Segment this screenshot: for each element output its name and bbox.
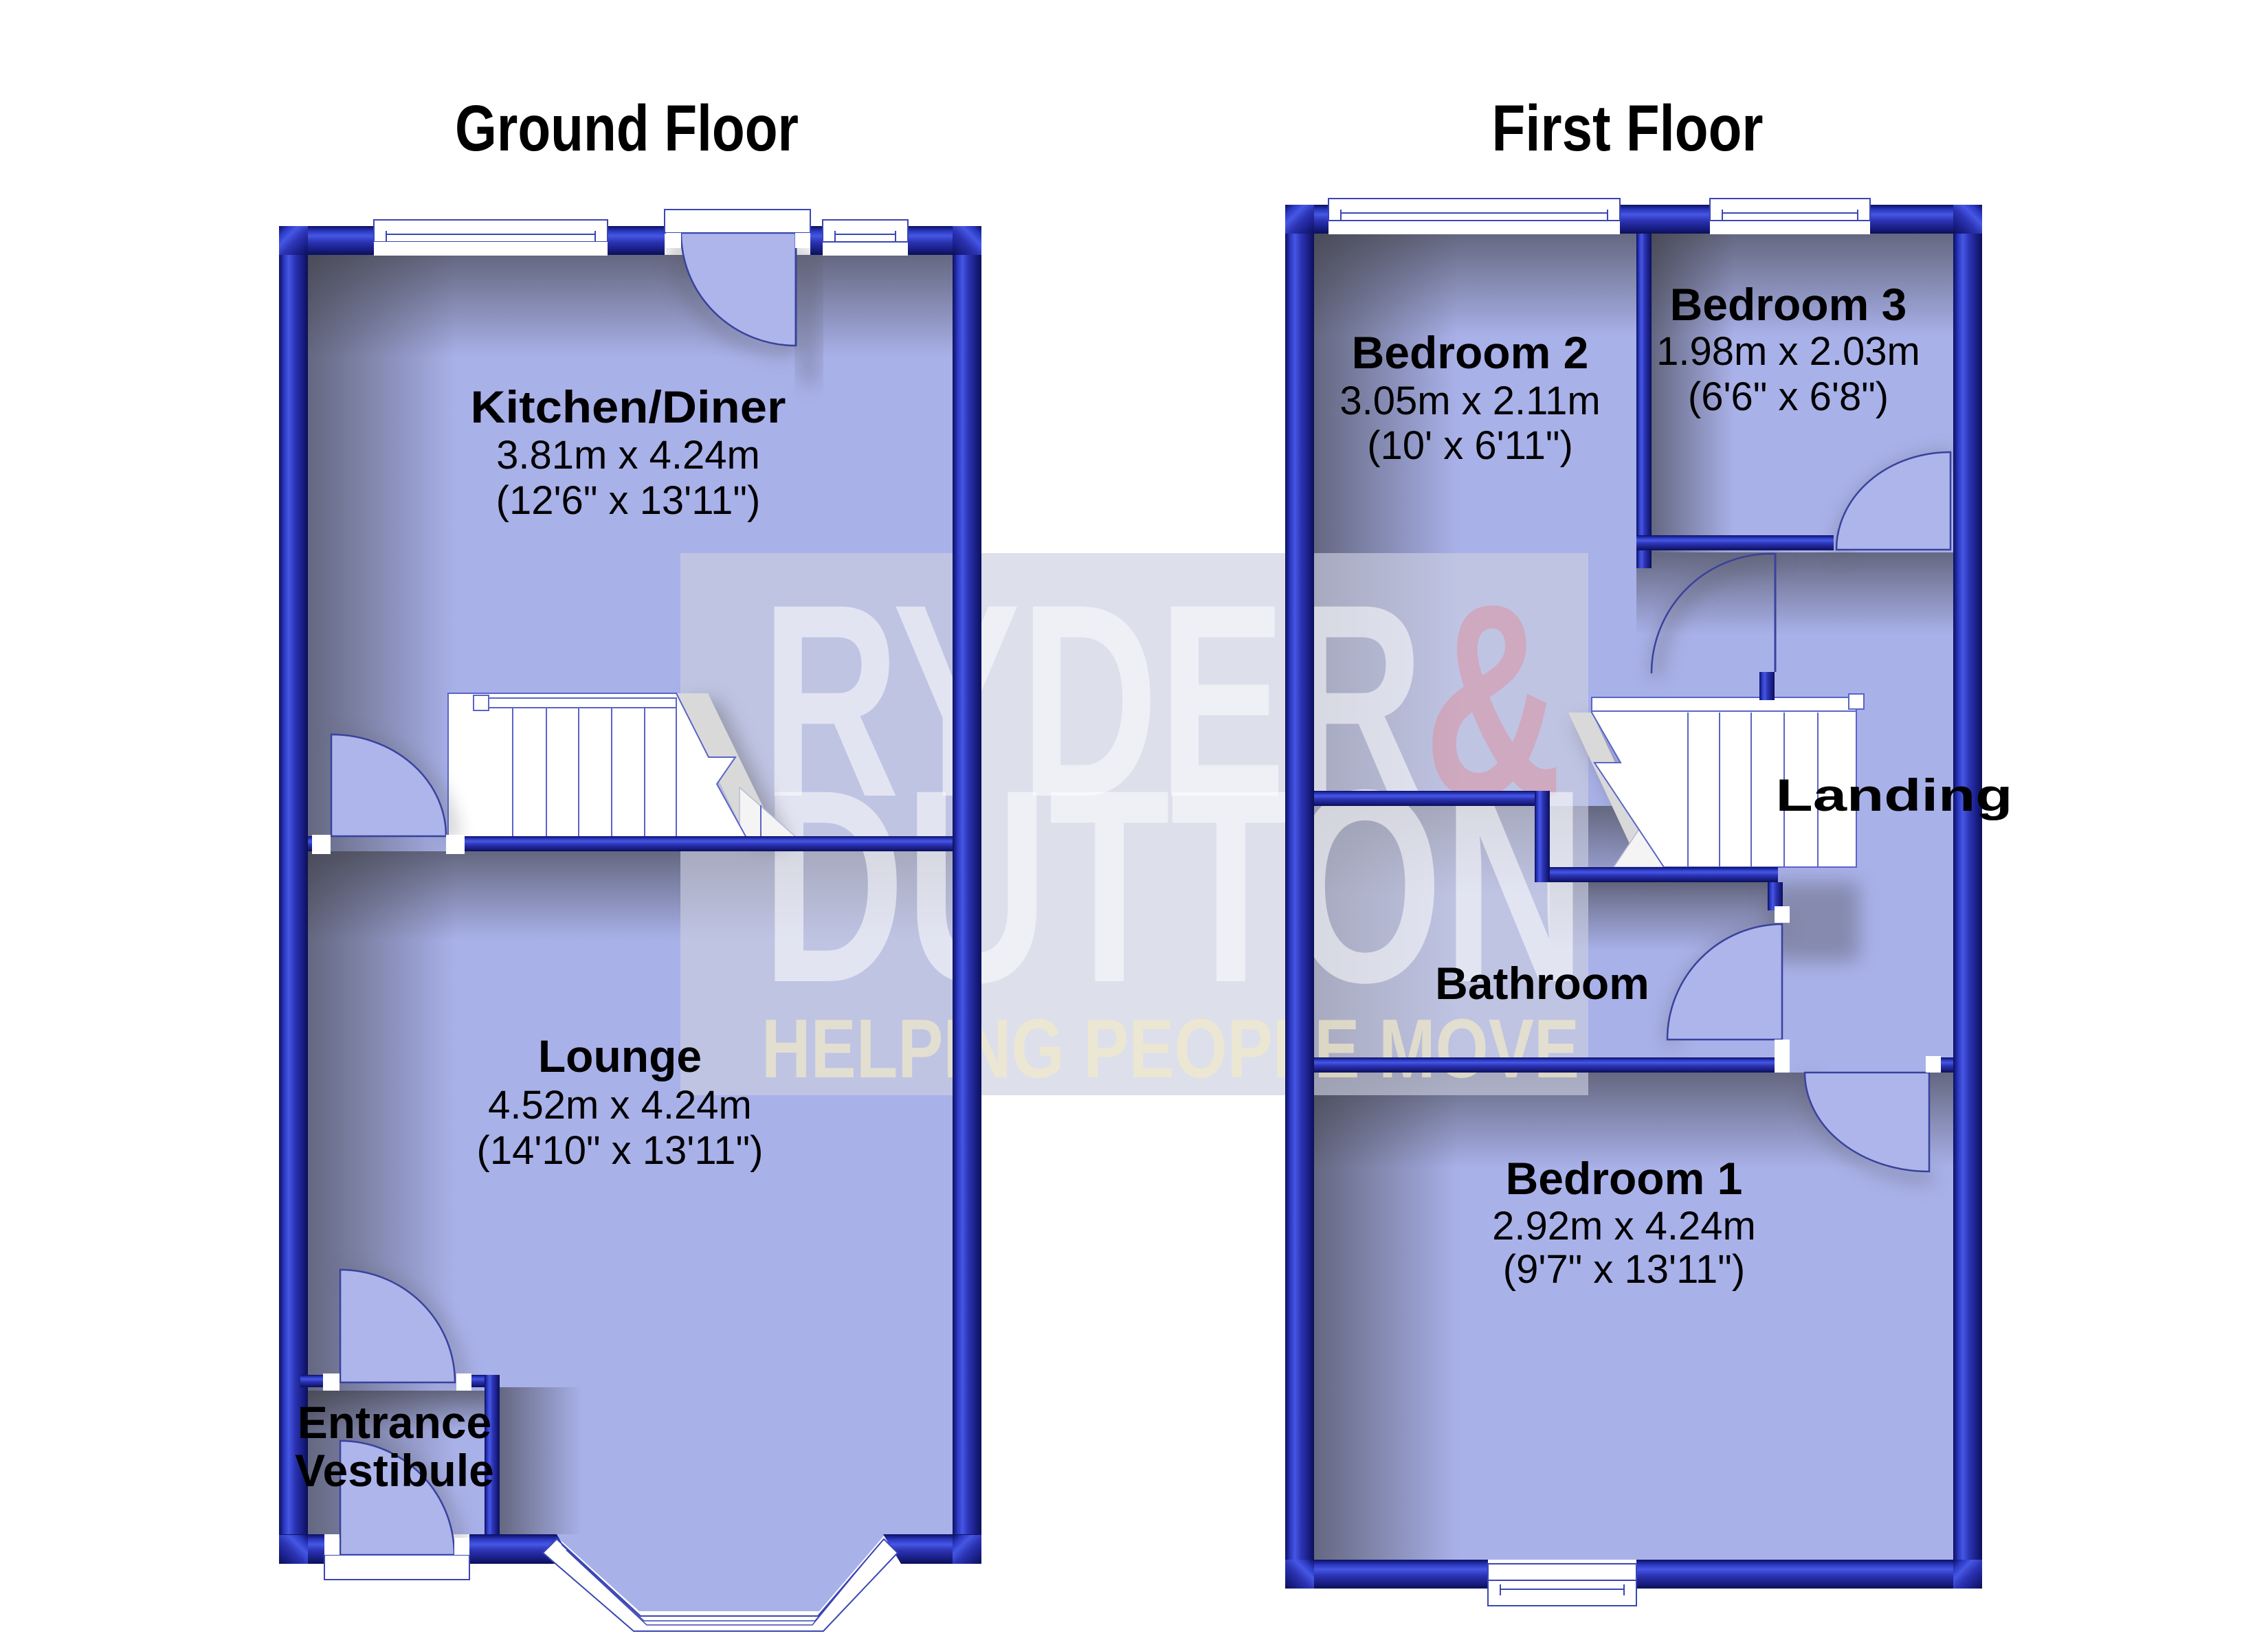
svg-text:(12'6" x 13'11"): (12'6" x 13'11") [496,478,761,523]
svg-text:(6'6" x 6'8"): (6'6" x 6'8") [1688,374,1889,419]
svg-text:4.52m x 4.24m: 4.52m x 4.24m [488,1083,752,1128]
svg-text:1.98m x 2.03m: 1.98m x 2.03m [1656,329,1920,374]
svg-text:3.81m x 4.24m: 3.81m x 4.24m [496,433,760,478]
svg-text:First Floor: First Floor [1492,92,1764,165]
svg-text:Bedroom 2: Bedroom 2 [1352,327,1589,378]
svg-text:Landing: Landing [1776,770,2013,820]
svg-text:Bedroom 3: Bedroom 3 [1670,279,1907,330]
svg-text:Ground Floor: Ground Floor [455,92,799,165]
svg-text:(9'7" x 13'11"): (9'7" x 13'11") [1503,1247,1745,1292]
svg-text:Kitchen/Diner: Kitchen/Diner [471,381,786,432]
svg-text:Bedroom 1: Bedroom 1 [1506,1153,1743,1204]
svg-text:Bathroom: Bathroom [1435,958,1649,1009]
svg-text:2.92m x 4.24m: 2.92m x 4.24m [1492,1204,1756,1248]
svg-text:(10' x 6'11"): (10' x 6'11") [1367,423,1573,468]
svg-text:(14'10" x 13'11"): (14'10" x 13'11") [477,1128,764,1173]
svg-text:Vestibule: Vestibule [295,1445,494,1496]
svg-text:Entrance: Entrance [298,1397,491,1448]
svg-text:3.05m x 2.11m: 3.05m x 2.11m [1339,379,1600,423]
svg-text:HELPING PEOPLE MOVE: HELPING PEOPLE MOVE [761,1002,1579,1095]
svg-text:Lounge: Lounge [538,1031,702,1081]
